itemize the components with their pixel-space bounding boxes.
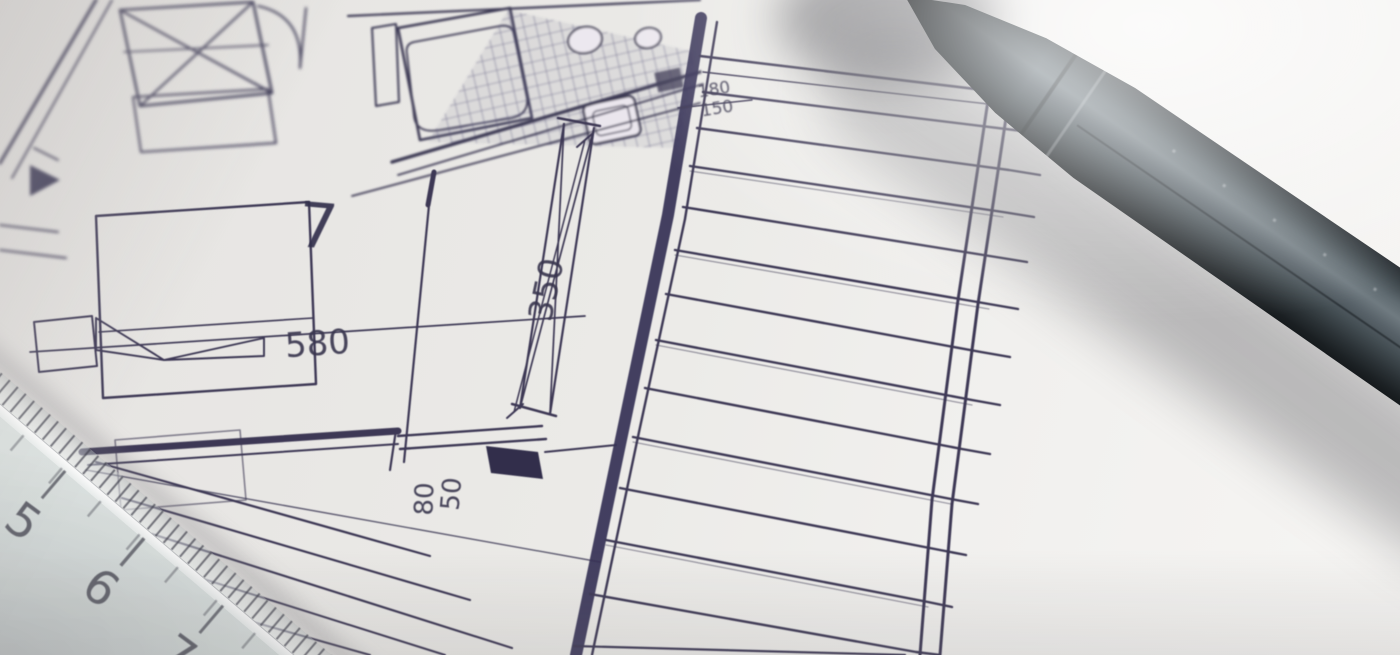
dimension-label-80: 80 <box>411 479 438 520</box>
photo-canvas: 7 580 350 180 150 80 50 4 5 6 7 8 <box>0 0 1400 655</box>
pen-ring-highlight <box>1043 67 1109 160</box>
dimension-label-50: 50 <box>437 473 466 515</box>
dimension-label-580: 580 <box>284 325 351 363</box>
plan-bathroom-group <box>348 0 703 196</box>
plan-topleft-group <box>0 0 306 258</box>
dimension-label-150: 150 <box>700 99 735 121</box>
room-number-label: 7 <box>295 194 340 259</box>
